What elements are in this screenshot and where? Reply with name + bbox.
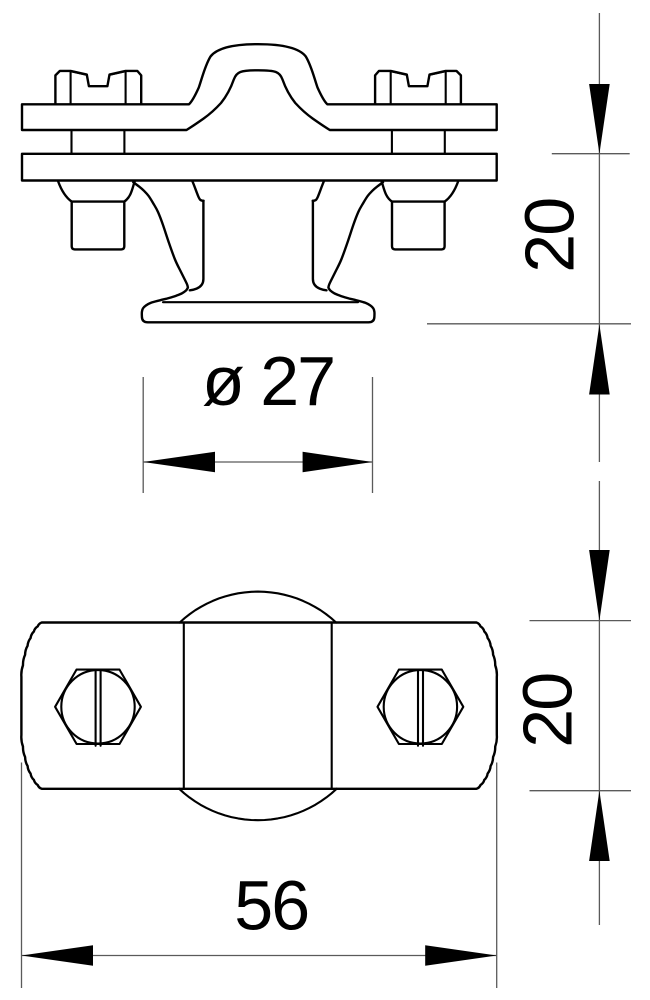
svg-text:ø 27: ø 27	[202, 342, 334, 420]
svg-text:20: 20	[511, 199, 589, 273]
svg-text:56: 56	[234, 867, 308, 945]
svg-text:20: 20	[509, 674, 587, 748]
